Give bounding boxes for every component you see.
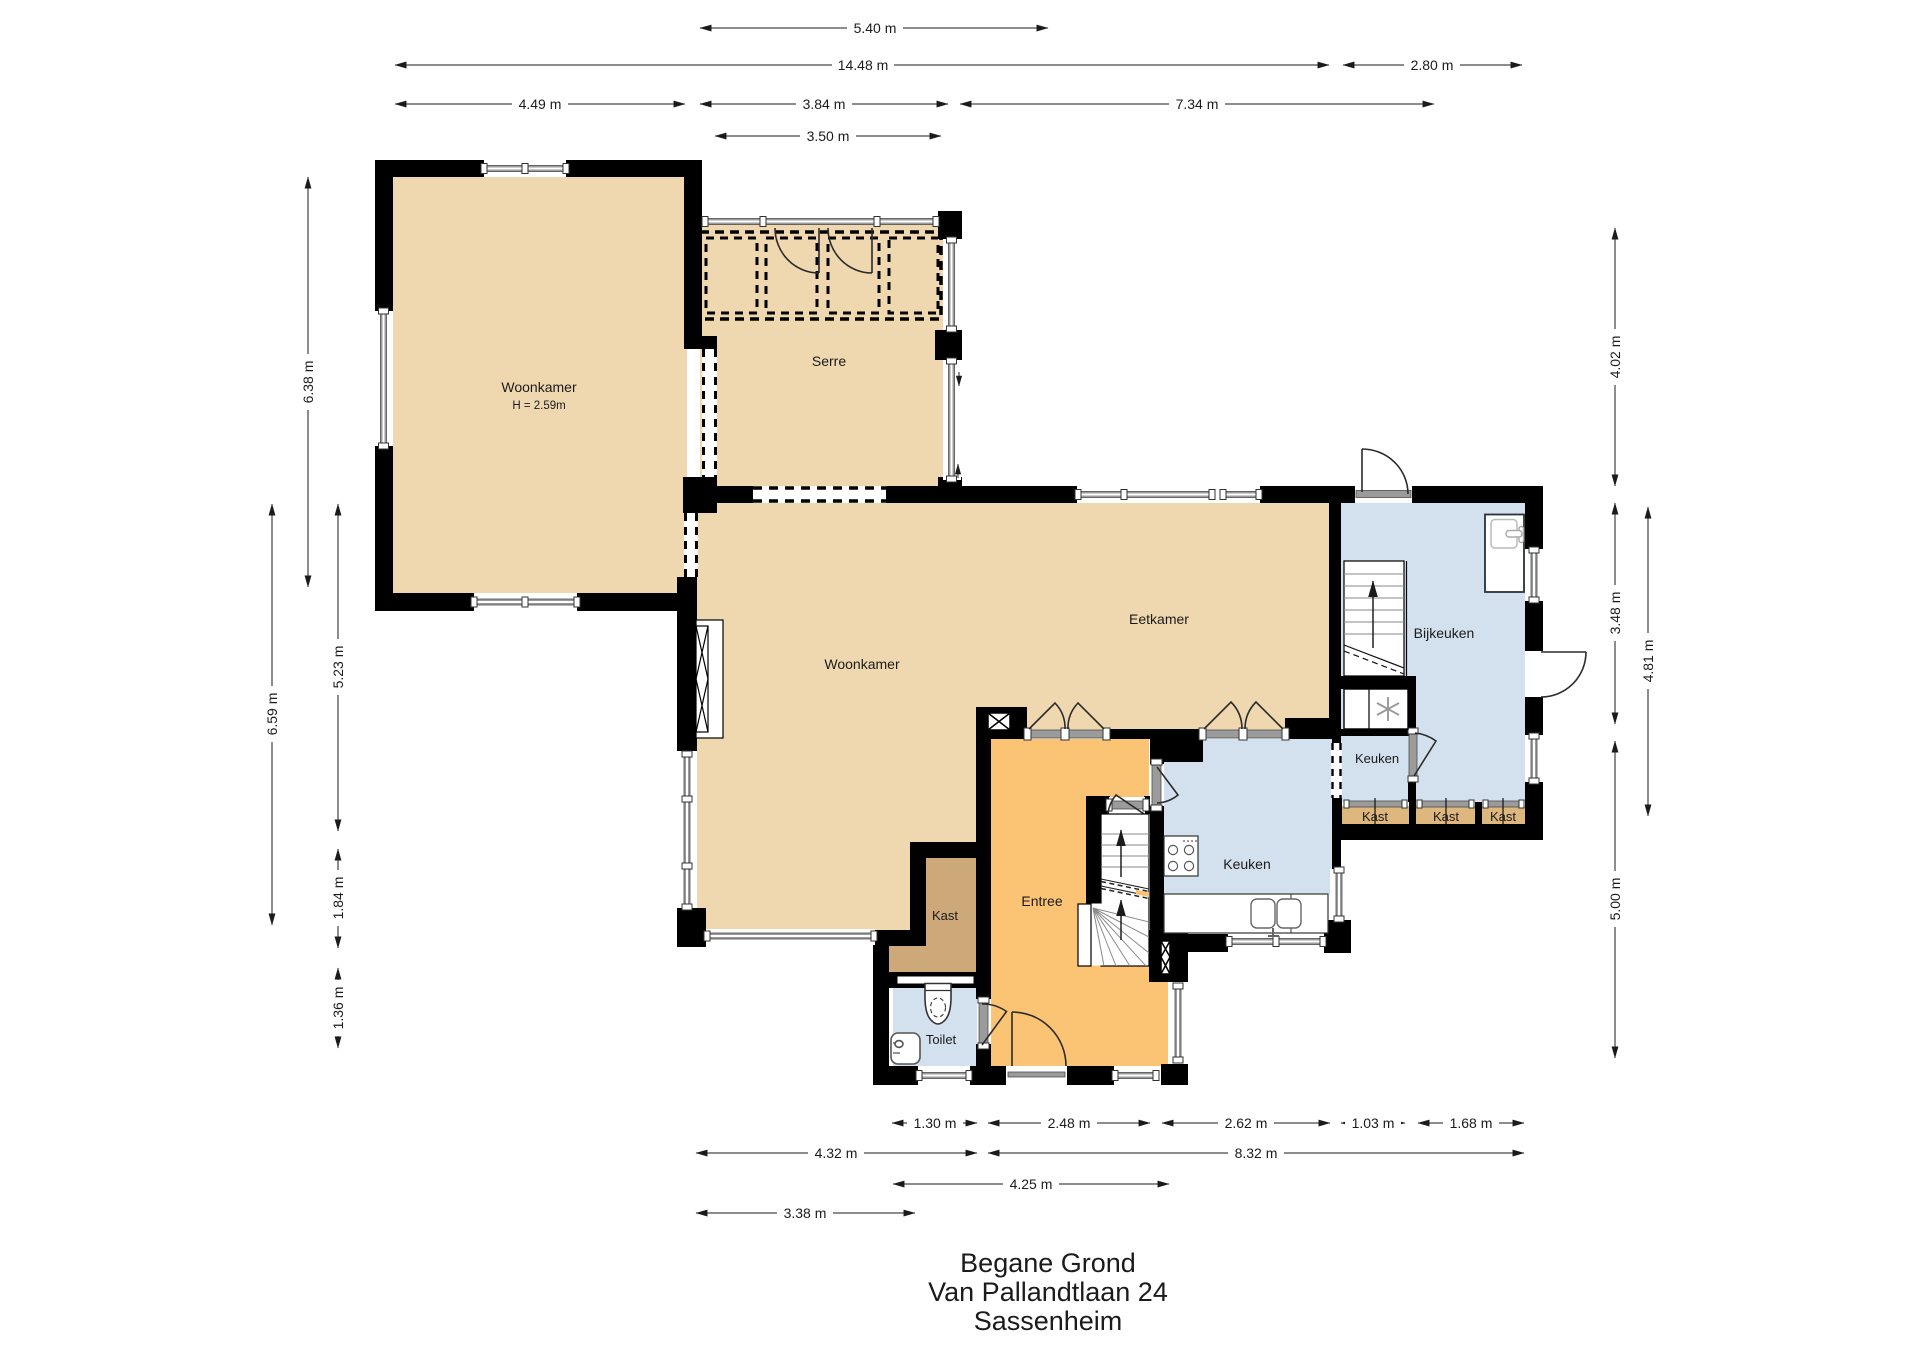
- svg-text:3.84 m: 3.84 m: [803, 96, 846, 112]
- svg-text:1.30 m: 1.30 m: [914, 1115, 957, 1131]
- svg-text:3.48 m: 3.48 m: [1607, 592, 1623, 635]
- svg-text:Keuken: Keuken: [1223, 856, 1270, 872]
- svg-text:Eetkamer: Eetkamer: [1129, 611, 1189, 627]
- svg-text:Kast: Kast: [1433, 809, 1459, 824]
- svg-text:2.80 m: 2.80 m: [1411, 57, 1454, 73]
- svg-text:Kast: Kast: [1490, 809, 1516, 824]
- svg-text:Keuken: Keuken: [1355, 751, 1399, 766]
- svg-text:H = 2.59m: H = 2.59m: [512, 400, 565, 412]
- svg-text:3.38 m: 3.38 m: [784, 1205, 827, 1221]
- svg-text:5.00 m: 5.00 m: [1607, 878, 1623, 921]
- svg-text:1.03 m: 1.03 m: [1352, 1115, 1395, 1131]
- svg-text:2.62 m: 2.62 m: [1225, 1115, 1268, 1131]
- svg-text:Begane Grond: Begane Grond: [960, 1248, 1136, 1278]
- svg-text:7.34 m: 7.34 m: [1176, 96, 1219, 112]
- svg-text:6.38 m: 6.38 m: [300, 361, 316, 404]
- svg-text:Bijkeuken: Bijkeuken: [1414, 625, 1475, 641]
- svg-text:1.36 m: 1.36 m: [330, 987, 346, 1030]
- svg-text:Woonkamer: Woonkamer: [824, 656, 900, 672]
- svg-text:4.25 m: 4.25 m: [1010, 1176, 1053, 1192]
- svg-text:1.68 m: 1.68 m: [1450, 1115, 1493, 1131]
- svg-text:3.50 m: 3.50 m: [807, 128, 850, 144]
- svg-text:5.23 m: 5.23 m: [330, 646, 346, 689]
- svg-text:4.81 m: 4.81 m: [1640, 640, 1656, 683]
- svg-text:14.48 m: 14.48 m: [838, 57, 889, 73]
- svg-text:2.48 m: 2.48 m: [1048, 1115, 1091, 1131]
- svg-text:Serre: Serre: [812, 353, 846, 369]
- svg-text:4.32 m: 4.32 m: [815, 1145, 858, 1161]
- svg-text:8.32 m: 8.32 m: [1235, 1145, 1278, 1161]
- svg-text:5.40 m: 5.40 m: [854, 20, 897, 36]
- svg-text:Toilet: Toilet: [926, 1032, 957, 1047]
- svg-text:Woonkamer: Woonkamer: [501, 379, 577, 395]
- svg-text:Van Pallandtlaan 24: Van Pallandtlaan 24: [928, 1277, 1168, 1307]
- svg-text:1.84 m: 1.84 m: [330, 877, 346, 920]
- svg-text:Kast: Kast: [1362, 809, 1388, 824]
- svg-text:4.02 m: 4.02 m: [1607, 336, 1623, 379]
- svg-text:Entree: Entree: [1021, 893, 1062, 909]
- svg-text:4.49 m: 4.49 m: [519, 96, 562, 112]
- svg-text:Kast: Kast: [932, 908, 958, 923]
- svg-text:Sassenheim: Sassenheim: [974, 1306, 1123, 1336]
- svg-text:6.59 m: 6.59 m: [264, 693, 280, 736]
